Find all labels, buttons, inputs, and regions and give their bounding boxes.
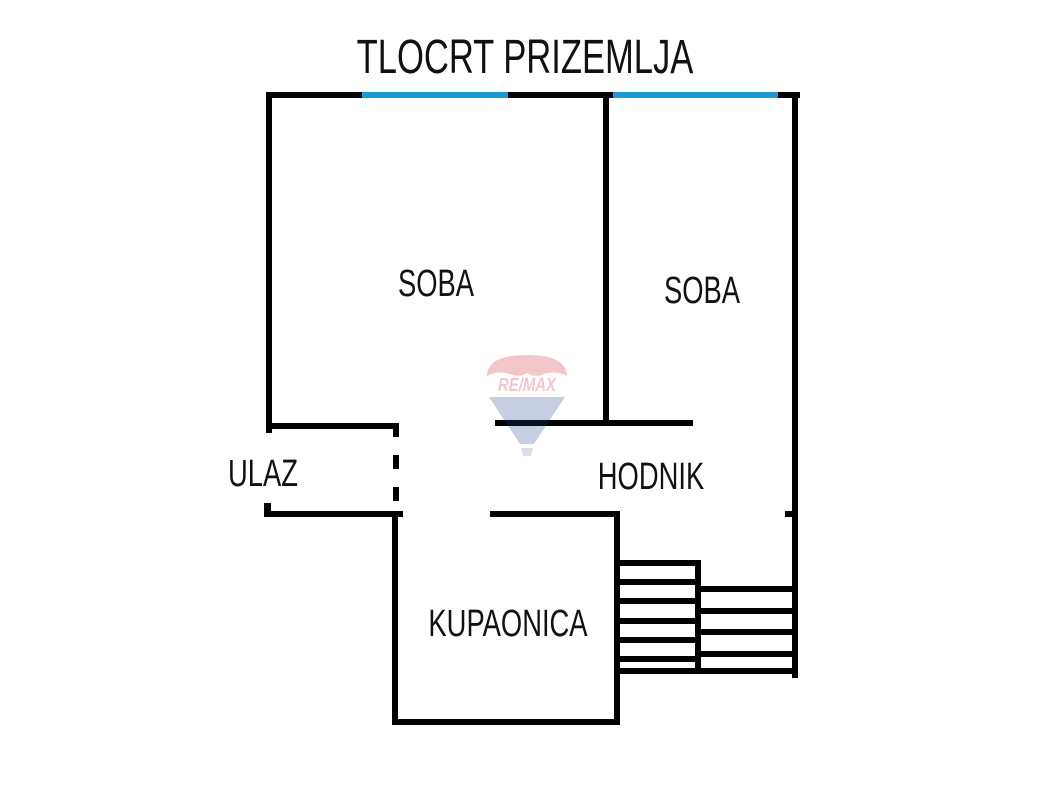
wall-room-divider (603, 92, 609, 425)
stair-step-line (700, 629, 795, 635)
stair-step-line (700, 586, 795, 592)
stairs-right-steps (700, 560, 795, 674)
room-label-ulaz: ULAZ (228, 455, 298, 493)
window-marker-right-icon (613, 92, 778, 98)
wall-bathroom-left (392, 511, 398, 725)
stair-step-line (620, 579, 698, 585)
plan-title: TLOCRT PRIZEMLJA (357, 34, 694, 82)
room-label-soba-right: SOBA (664, 272, 740, 310)
stair-step-line (620, 637, 698, 643)
wall-bathroom-bottom (392, 719, 620, 725)
floor-plan-canvas: TLOCRT PRIZEMLJA SOBA SOBA ULAZ HODNIK K… (0, 0, 1063, 804)
stair-step-line (620, 598, 698, 604)
staircase (618, 560, 795, 676)
stairs-divider-line (695, 560, 701, 674)
stair-step-line (620, 618, 698, 624)
wall-left (266, 92, 272, 433)
balloon-basket (521, 448, 533, 456)
remax-watermark-text: RE/MAX (498, 375, 557, 395)
stair-step-line (700, 608, 795, 614)
wall-ulaz-bottom (264, 511, 403, 517)
remax-balloon-icon: RE/MAX (483, 354, 571, 462)
stairs-left-steps (620, 560, 698, 674)
balloon-top-red (487, 355, 567, 376)
room-label-hodnik: HODNIK (598, 458, 704, 496)
room-label-kupaonica: KUPAONICA (428, 605, 587, 643)
door-opening-dashed-line (393, 423, 399, 511)
stair-step-line (620, 560, 698, 566)
wall-right-stub (785, 511, 792, 517)
stairs-bottom-line (618, 668, 795, 674)
stair-step-line (620, 656, 698, 662)
stair-step-line (700, 651, 795, 657)
window-marker-left-icon (362, 92, 508, 98)
balloon-bottom-blue (489, 397, 565, 444)
wall-ulaz-top (266, 423, 397, 429)
wall-hodnik-bottom (490, 511, 620, 517)
room-label-soba-left: SOBA (398, 265, 474, 303)
